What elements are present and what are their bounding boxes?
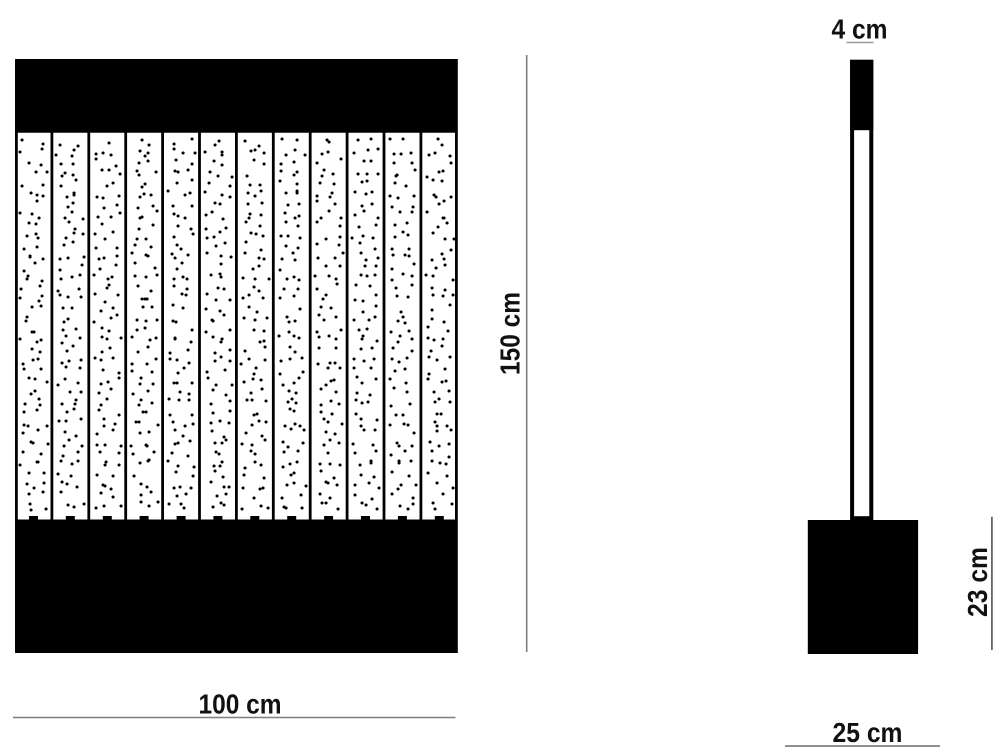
svg-text:150 cm: 150 cm — [495, 292, 526, 375]
svg-text:25 cm: 25 cm — [833, 717, 903, 748]
svg-text:23 cm: 23 cm — [962, 547, 993, 617]
svg-text:100 cm: 100 cm — [199, 689, 282, 720]
svg-text:4 cm: 4 cm — [832, 14, 888, 45]
